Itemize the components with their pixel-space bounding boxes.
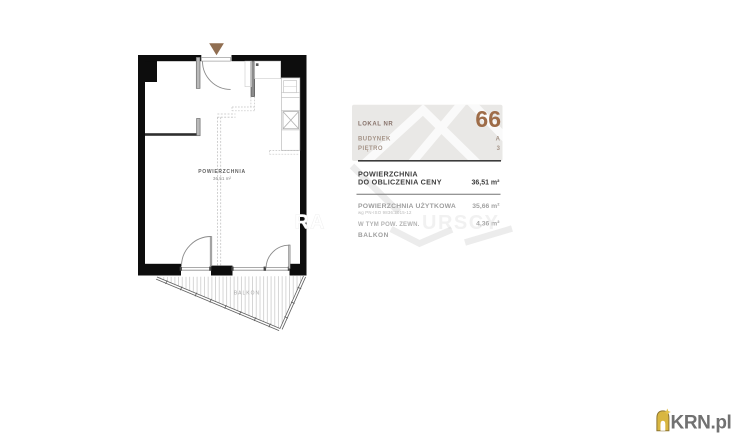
svg-text:wg PN-ISO 9836:2015-12: wg PN-ISO 9836:2015-12 bbox=[358, 210, 412, 215]
svg-text:PIĘTRO: PIĘTRO bbox=[358, 146, 383, 152]
svg-text:36,51 m²: 36,51 m² bbox=[471, 179, 500, 186]
svg-text:POWIERZCHNIA UŻYTKOWA: POWIERZCHNIA UŻYTKOWA bbox=[358, 202, 456, 210]
svg-text:BALKON: BALKON bbox=[358, 232, 389, 239]
svg-text:LOKAL NR: LOKAL NR bbox=[358, 122, 393, 128]
svg-text:35,66 m²: 35,66 m² bbox=[472, 203, 500, 210]
svg-text:BALKON: BALKON bbox=[234, 291, 260, 297]
svg-text:KRN.pl: KRN.pl bbox=[671, 413, 732, 434]
svg-text:DO OBLICZENIA CENY: DO OBLICZENIA CENY bbox=[358, 177, 442, 186]
svg-text:36,51 m²: 36,51 m² bbox=[213, 176, 232, 181]
svg-text:POWIERZCHNIA: POWIERZCHNIA bbox=[198, 169, 246, 175]
svg-text:W TYM POW. ZEWN.: W TYM POW. ZEWN. bbox=[358, 222, 420, 228]
svg-text:BUDYNEK: BUDYNEK bbox=[358, 137, 391, 143]
svg-text:URSCY: URSCY bbox=[422, 212, 500, 234]
svg-text:A: A bbox=[496, 137, 501, 143]
svg-text:RA: RA bbox=[295, 212, 326, 234]
svg-text:66: 66 bbox=[475, 106, 501, 132]
